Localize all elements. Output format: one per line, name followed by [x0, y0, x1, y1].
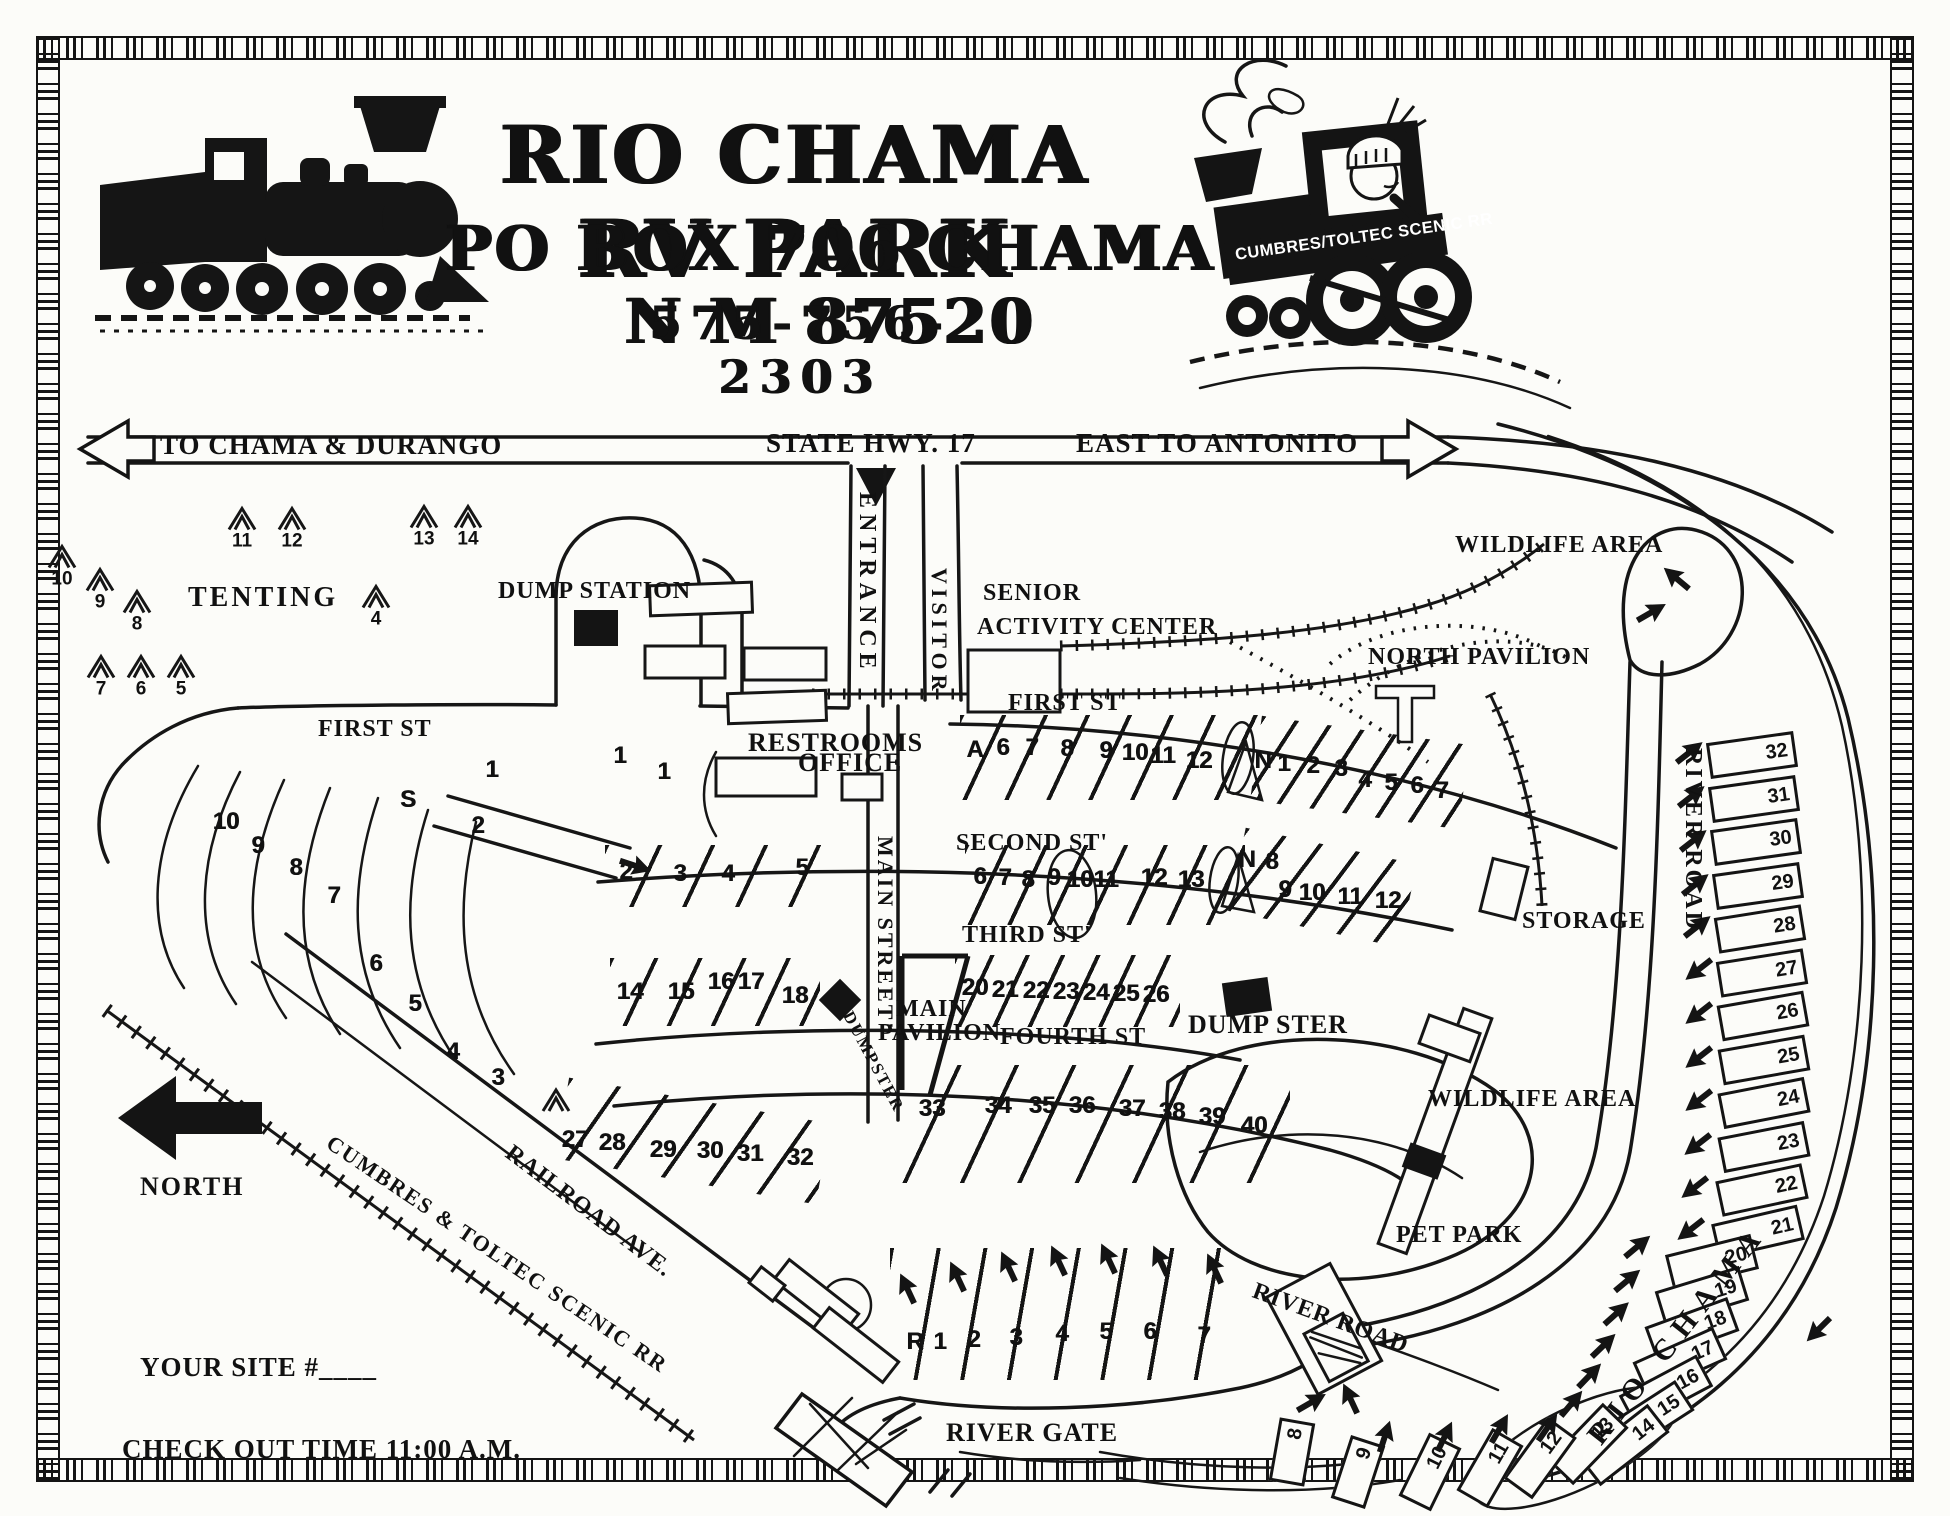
site-number: 10	[1299, 879, 1326, 907]
site-number: 1	[1277, 750, 1290, 778]
site-slot: 28	[1714, 904, 1807, 953]
site-number: 7	[998, 864, 1011, 892]
site-number: 5	[408, 990, 421, 1018]
site-number: 4	[721, 860, 734, 888]
site-number: 17	[738, 968, 765, 996]
direction-arrow-icon	[1092, 1238, 1124, 1277]
direction-arrow-icon	[1598, 1294, 1637, 1332]
direction-arrow-icon	[891, 1268, 923, 1307]
tent-site-icon: 14	[453, 504, 483, 549]
site-number: 9	[251, 832, 264, 860]
site-number: 7	[1025, 734, 1038, 762]
dump-station-label: DUMP STATION	[498, 578, 691, 605]
site-number: 35	[1029, 1092, 1056, 1120]
site-number: 2	[471, 812, 484, 840]
fourth-st-label: FOURTH ST	[1000, 1024, 1146, 1051]
site-number: 11	[1093, 866, 1118, 894]
direction-arrow-icon	[1144, 1240, 1176, 1279]
site-number: 23	[1053, 978, 1080, 1006]
direction-arrow-icon	[1334, 1378, 1366, 1417]
site-number: 14	[617, 978, 644, 1006]
highway-east-label: EAST TO ANTONITO	[1076, 428, 1358, 459]
direction-arrow-icon	[1619, 1227, 1658, 1264]
tent-site-icon: 10	[47, 544, 77, 589]
highway-name-label: STATE HWY. 17	[766, 428, 976, 459]
site-number: 5	[1099, 1318, 1112, 1346]
direction-arrow-icon	[1292, 1385, 1331, 1419]
tent-site-icon: 11	[227, 506, 257, 551]
site-number: 4	[446, 1038, 459, 1066]
site-number: 2	[967, 1326, 980, 1354]
site-number: 4	[1358, 766, 1371, 794]
site-number: 9	[1099, 737, 1112, 765]
site-number: 1	[613, 742, 626, 770]
site-number: 7	[1197, 1322, 1210, 1350]
site-number: 6	[996, 734, 1009, 762]
tent-site-icon	[541, 1087, 571, 1113]
site-number: N	[1254, 747, 1271, 775]
tent-site-icon: 13	[409, 504, 439, 549]
site-number: 26	[1143, 981, 1170, 1009]
main-street-label: MAIN STREET'	[872, 836, 898, 1032]
site-number: 10	[213, 808, 240, 836]
tenting-label: TENTING	[188, 582, 338, 614]
site-number: 12	[1186, 747, 1213, 775]
site-number: 39	[1199, 1103, 1226, 1131]
site-number: 7	[327, 882, 340, 910]
site-number: 8	[1265, 848, 1278, 876]
direction-arrow-icon	[1370, 1417, 1400, 1456]
site-number: 3	[673, 860, 686, 888]
site-slot: 8	[1269, 1417, 1316, 1486]
site-number: 5	[1384, 769, 1397, 797]
site-number: 1	[933, 1328, 946, 1356]
site-slot: 30	[1710, 818, 1802, 866]
site-number: 30	[697, 1137, 724, 1165]
site-number: 5	[795, 854, 808, 882]
site-number: 3	[1009, 1324, 1022, 1352]
site-number: 1	[657, 758, 670, 786]
direction-arrow-icon	[1632, 595, 1671, 629]
river-gate-label: RIVER GATE	[946, 1418, 1118, 1448]
site-number: 8	[289, 854, 302, 882]
office-label: OFFICE	[798, 748, 902, 778]
north-label: NORTH	[140, 1172, 244, 1202]
site-slot: 26	[1717, 991, 1810, 1042]
main-pavilion-label-1: MAIN	[896, 996, 967, 1023]
storage-label: STORAGE	[1522, 908, 1646, 935]
first-st-east-label: FIRST ST	[1008, 690, 1122, 717]
direction-arrow-icon	[992, 1246, 1024, 1285]
tent-site-icon: 5	[166, 654, 196, 699]
site-number: 11	[1337, 883, 1362, 911]
dumpster-square	[574, 610, 618, 646]
senior-activity-center-label-1: SENIOR	[983, 580, 1081, 607]
direction-arrow-icon	[1609, 1261, 1648, 1298]
highway-west-label: TO CHAMA & DURANGO	[160, 430, 502, 461]
direction-arrow-icon	[1678, 1083, 1717, 1120]
site-number: 12	[1375, 887, 1402, 915]
site-number: 22	[1023, 977, 1050, 1005]
site-number: 10	[1067, 866, 1094, 894]
tent-site-icon: 7	[86, 654, 116, 699]
direction-arrow-icon	[1670, 1212, 1709, 1249]
rv-park-map-page: 1098111213144765109876543S12112345141516…	[0, 0, 1950, 1516]
site-number: 4	[1055, 1320, 1068, 1348]
site-number: 28	[599, 1129, 626, 1157]
site-slot: 29	[1712, 862, 1804, 910]
pet-park-label: PET PARK	[1396, 1222, 1522, 1249]
site-number: 24	[1083, 979, 1110, 1007]
site-number: 3	[491, 1064, 504, 1092]
site-number: 13	[1178, 866, 1205, 894]
wildlife-area-south-label: WILDLIFE AREA	[1428, 1086, 1636, 1113]
direction-arrow-icon	[1657, 559, 1696, 596]
site-number: 15	[668, 978, 695, 1006]
site-number: 9	[1278, 876, 1291, 904]
site-number: 8	[1021, 866, 1034, 894]
direction-arrow-icon	[1678, 996, 1717, 1033]
site-number: 10	[1122, 739, 1149, 767]
site-number: 1	[485, 756, 498, 784]
site-number: 6	[1143, 1318, 1156, 1346]
site-number: 25	[1113, 980, 1140, 1008]
site-number: 12	[1141, 864, 1168, 892]
site-number: A	[966, 736, 983, 764]
site-number: 29	[650, 1136, 677, 1164]
park-phone: 575-756-2303	[640, 296, 960, 404]
direction-arrow-icon	[941, 1256, 973, 1295]
direction-arrow-icon	[1677, 1127, 1716, 1164]
second-st-label: SECOND ST'	[956, 830, 1108, 857]
site-number: S	[400, 786, 416, 814]
your-site-number-label: YOUR SITE #____	[140, 1352, 377, 1383]
site-number: 11	[1150, 742, 1175, 770]
tent-site-icon: 12	[277, 506, 307, 551]
site-number: 3	[1334, 755, 1347, 783]
dumpster-east-label: DUMP STER	[1188, 1010, 1348, 1040]
senior-activity-center-label-2: ACTIVITY CENTER	[977, 614, 1217, 641]
site-slot: 31	[1708, 775, 1800, 823]
site-number: 38	[1159, 1098, 1186, 1126]
site-number: 33	[919, 1095, 946, 1123]
third-st-label: THIRD ST'	[962, 922, 1092, 949]
site-number: N	[1238, 846, 1255, 874]
site-number: 9	[1047, 864, 1060, 892]
tent-site-icon: 6	[126, 654, 156, 699]
tent-site-icon: 8	[122, 589, 152, 634]
check-out-time-label: CHECK OUT TIME 11:00 A.M.	[122, 1434, 521, 1465]
site-number: R	[906, 1328, 923, 1356]
site-number: 21	[992, 976, 1019, 1004]
site-number: 27	[562, 1126, 589, 1154]
site-slot: 32	[1706, 731, 1798, 779]
site-number: 40	[1241, 1112, 1268, 1140]
site-number: 16	[708, 968, 735, 996]
site-number: 6	[973, 863, 986, 891]
direction-arrow-icon	[1042, 1240, 1074, 1279]
visitor-label: VISITOR	[926, 568, 952, 696]
site-number: 7	[1435, 777, 1448, 805]
site-number: 37	[1119, 1095, 1146, 1123]
site-number: 2	[1306, 752, 1319, 780]
tent-site-icon: 9	[85, 567, 115, 612]
main-pavilion-label-2: PAVILION	[878, 1020, 1001, 1047]
first-st-west-label: FIRST ST	[318, 716, 432, 743]
site-number: 8	[1060, 735, 1073, 763]
site-number: 31	[737, 1140, 764, 1168]
site-number: 18	[782, 982, 809, 1010]
wildlife-area-north-label: WILDLIFE AREA	[1455, 532, 1663, 559]
site-slot: 27	[1716, 948, 1809, 997]
site-number: 32	[787, 1144, 814, 1172]
site-number: 34	[985, 1092, 1012, 1120]
site-number: 36	[1069, 1092, 1096, 1120]
direction-arrow-icon	[1678, 952, 1717, 989]
north-pavilion-label: NORTH PAVILION	[1368, 644, 1590, 671]
direction-arrow-icon	[1674, 1170, 1713, 1207]
direction-arrow-icon	[1198, 1248, 1230, 1287]
entrance-label: ENTRANCE	[853, 492, 880, 675]
tent-site-icon: 4	[361, 584, 391, 629]
site-number: 6	[1410, 772, 1423, 800]
direction-arrow-icon	[1799, 1311, 1837, 1349]
direction-arrow-icon	[1678, 1040, 1717, 1077]
site-number: 6	[369, 950, 382, 978]
river-road-east-label: RIVER ROAD	[1679, 748, 1706, 932]
